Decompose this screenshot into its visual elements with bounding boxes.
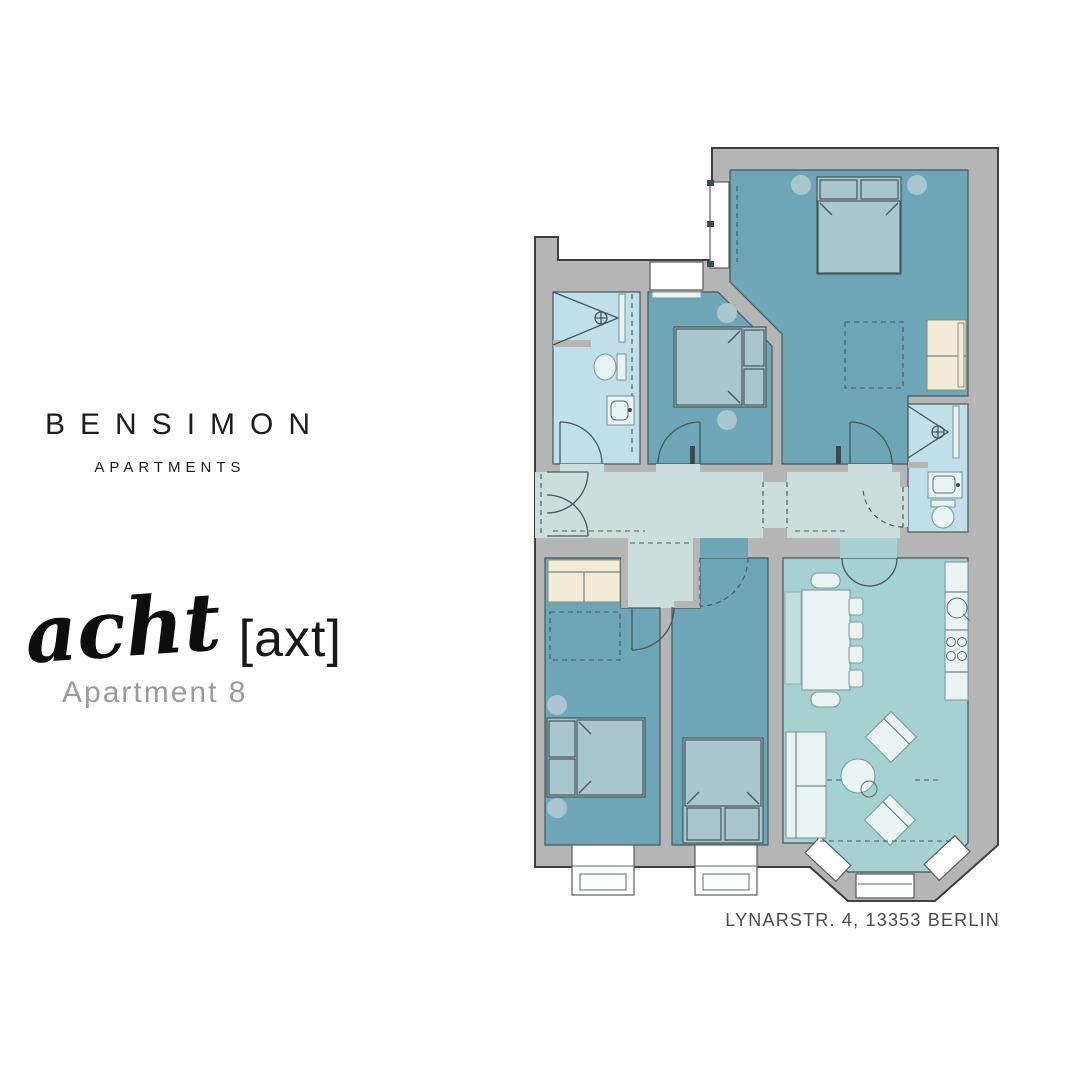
radiator bbox=[836, 446, 841, 464]
chair bbox=[849, 622, 863, 639]
toilet-icon bbox=[594, 354, 626, 380]
toilet-icon bbox=[931, 500, 955, 528]
window-bedroom-4 bbox=[695, 845, 757, 895]
sink-icon bbox=[928, 472, 962, 498]
bedroom-4-furniture bbox=[683, 738, 763, 843]
bedside-table bbox=[717, 410, 737, 430]
sofa bbox=[548, 560, 620, 602]
chair bbox=[849, 646, 863, 663]
chair bbox=[849, 598, 863, 615]
bedside-table bbox=[547, 695, 567, 715]
window-bedroom-3 bbox=[572, 845, 634, 895]
sideboard bbox=[785, 592, 801, 684]
double-bed bbox=[674, 327, 766, 407]
sofa bbox=[786, 732, 826, 838]
bedside-table bbox=[791, 175, 811, 195]
page: BENSIMON APARTMENTS acht [axt] Apartment… bbox=[0, 0, 1072, 1072]
kitchen-counter bbox=[945, 562, 970, 700]
bedside-table bbox=[547, 798, 567, 818]
double-bed bbox=[683, 738, 763, 843]
double-bed bbox=[817, 177, 901, 274]
floor-plan bbox=[0, 0, 1072, 1072]
radiator bbox=[690, 446, 695, 464]
room-hallway bbox=[547, 472, 900, 538]
double-bed bbox=[547, 718, 645, 797]
wardrobe bbox=[927, 320, 966, 390]
chair bbox=[849, 670, 863, 687]
sink-icon bbox=[607, 396, 634, 425]
window-bedroom-2-top bbox=[650, 262, 703, 298]
bedside-table bbox=[717, 303, 737, 323]
hallway-nook bbox=[628, 538, 693, 608]
bedside-table bbox=[907, 175, 927, 195]
